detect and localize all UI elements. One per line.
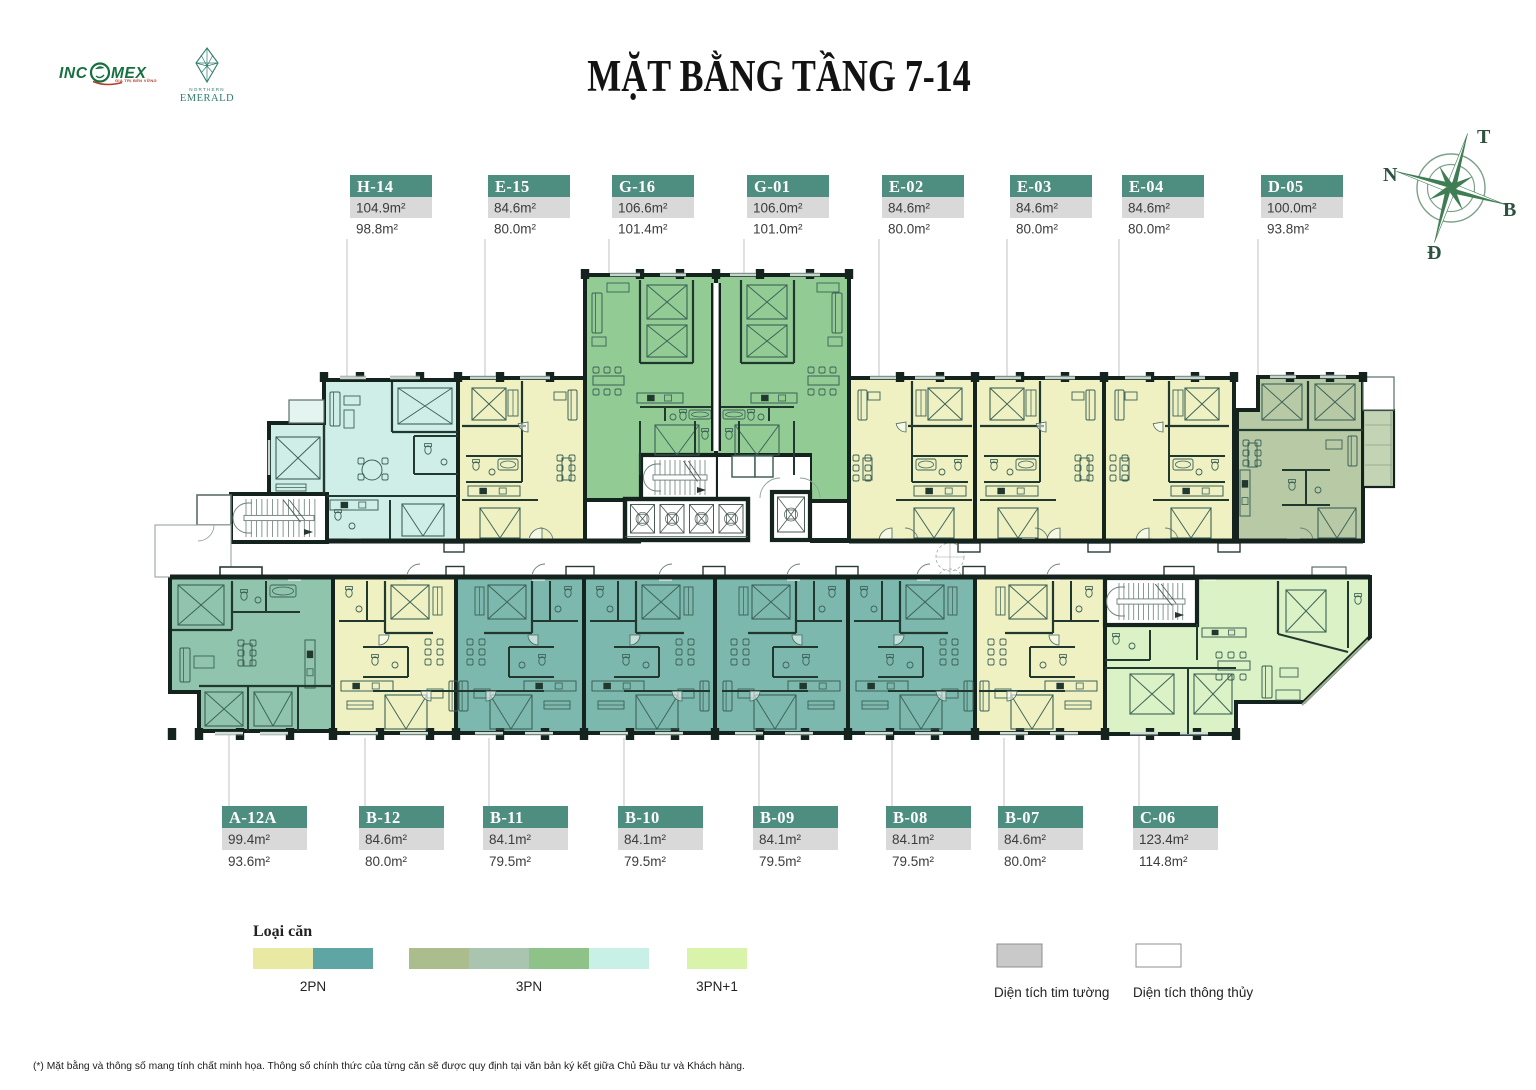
svg-text:H-14: H-14 [357, 177, 393, 196]
svg-text:D-05: D-05 [1268, 177, 1304, 196]
svg-text:E-15: E-15 [495, 177, 530, 196]
svg-text:84.6m²: 84.6m² [1004, 832, 1047, 847]
svg-text:79.5m²: 79.5m² [892, 854, 935, 869]
svg-text:104.9m²: 104.9m² [356, 201, 406, 216]
svg-text:Diện tích thông thủy: Diện tích thông thủy [1133, 985, 1253, 1000]
svg-text:T: T [1477, 126, 1491, 148]
svg-text:N: N [1383, 164, 1398, 186]
svg-text:Diện tích tim tường: Diện tích tim tường [994, 985, 1109, 1000]
svg-text:80.0m²: 80.0m² [365, 854, 408, 869]
svg-text:G-16: G-16 [619, 177, 655, 196]
svg-text:106.0m²: 106.0m² [753, 201, 803, 216]
svg-text:100.0m²: 100.0m² [1267, 201, 1317, 216]
svg-text:G-01: G-01 [754, 177, 790, 196]
svg-text:84.6m²: 84.6m² [494, 201, 537, 216]
svg-text:93.6m²: 93.6m² [228, 854, 271, 869]
svg-text:84.6m²: 84.6m² [365, 832, 408, 847]
svg-text:A-12A: A-12A [229, 808, 277, 827]
svg-text:B-08: B-08 [893, 808, 928, 827]
svg-text:INC: INC [59, 65, 88, 82]
svg-text:3PN+1: 3PN+1 [696, 979, 738, 994]
svg-text:2PN: 2PN [300, 979, 326, 994]
svg-text:84.6m²: 84.6m² [888, 201, 931, 216]
svg-text:Đ: Đ [1427, 242, 1441, 264]
svg-text:EMERALD: EMERALD [180, 93, 234, 104]
svg-text:123.4m²: 123.4m² [1139, 832, 1189, 847]
svg-text:84.6m²: 84.6m² [1016, 201, 1059, 216]
svg-text:GIA TRỊ BỀN VỮNG: GIA TRỊ BỀN VỮNG [115, 78, 157, 83]
svg-text:B-10: B-10 [625, 808, 660, 827]
svg-text:101.4m²: 101.4m² [618, 222, 668, 237]
svg-text:93.8m²: 93.8m² [1267, 222, 1310, 237]
svg-text:B-12: B-12 [366, 808, 401, 827]
svg-text:80.0m²: 80.0m² [1004, 854, 1047, 869]
svg-text:84.6m²: 84.6m² [1128, 201, 1171, 216]
svg-text:B: B [1503, 199, 1516, 221]
svg-text:E-03: E-03 [1017, 177, 1052, 196]
svg-text:B-11: B-11 [490, 808, 524, 827]
svg-text:84.1m²: 84.1m² [624, 832, 667, 847]
svg-text:101.0m²: 101.0m² [753, 222, 803, 237]
svg-text:114.8m²: 114.8m² [1139, 854, 1188, 869]
svg-text:B-09: B-09 [760, 808, 795, 827]
svg-text:E-04: E-04 [1129, 177, 1164, 196]
svg-text:(*) Mặt bằng và thông số mang: (*) Mặt bằng và thông số mang tính chất … [33, 1059, 745, 1072]
svg-text:3PN: 3PN [516, 979, 542, 994]
svg-text:NORTHERN: NORTHERN [189, 87, 225, 92]
svg-text:79.5m²: 79.5m² [489, 854, 532, 869]
svg-text:80.0m²: 80.0m² [1016, 222, 1059, 237]
svg-text:99.4m²: 99.4m² [228, 832, 271, 847]
svg-text:106.6m²: 106.6m² [618, 201, 668, 216]
svg-text:84.1m²: 84.1m² [892, 832, 935, 847]
svg-text:80.0m²: 80.0m² [888, 222, 931, 237]
svg-text:79.5m²: 79.5m² [624, 854, 667, 869]
svg-text:84.1m²: 84.1m² [489, 832, 532, 847]
svg-text:Loại căn: Loại căn [253, 923, 312, 940]
svg-text:E-02: E-02 [889, 177, 924, 196]
svg-text:B-07: B-07 [1005, 808, 1040, 827]
svg-text:98.8m²: 98.8m² [356, 222, 399, 237]
svg-text:79.5m²: 79.5m² [759, 854, 802, 869]
svg-text:84.1m²: 84.1m² [759, 832, 802, 847]
svg-text:MẶT BẰNG TẦNG 7-14: MẶT BẰNG TẦNG 7-14 [587, 51, 971, 101]
svg-text:80.0m²: 80.0m² [494, 222, 537, 237]
svg-text:C-06: C-06 [1140, 808, 1176, 827]
svg-text:80.0m²: 80.0m² [1128, 222, 1171, 237]
